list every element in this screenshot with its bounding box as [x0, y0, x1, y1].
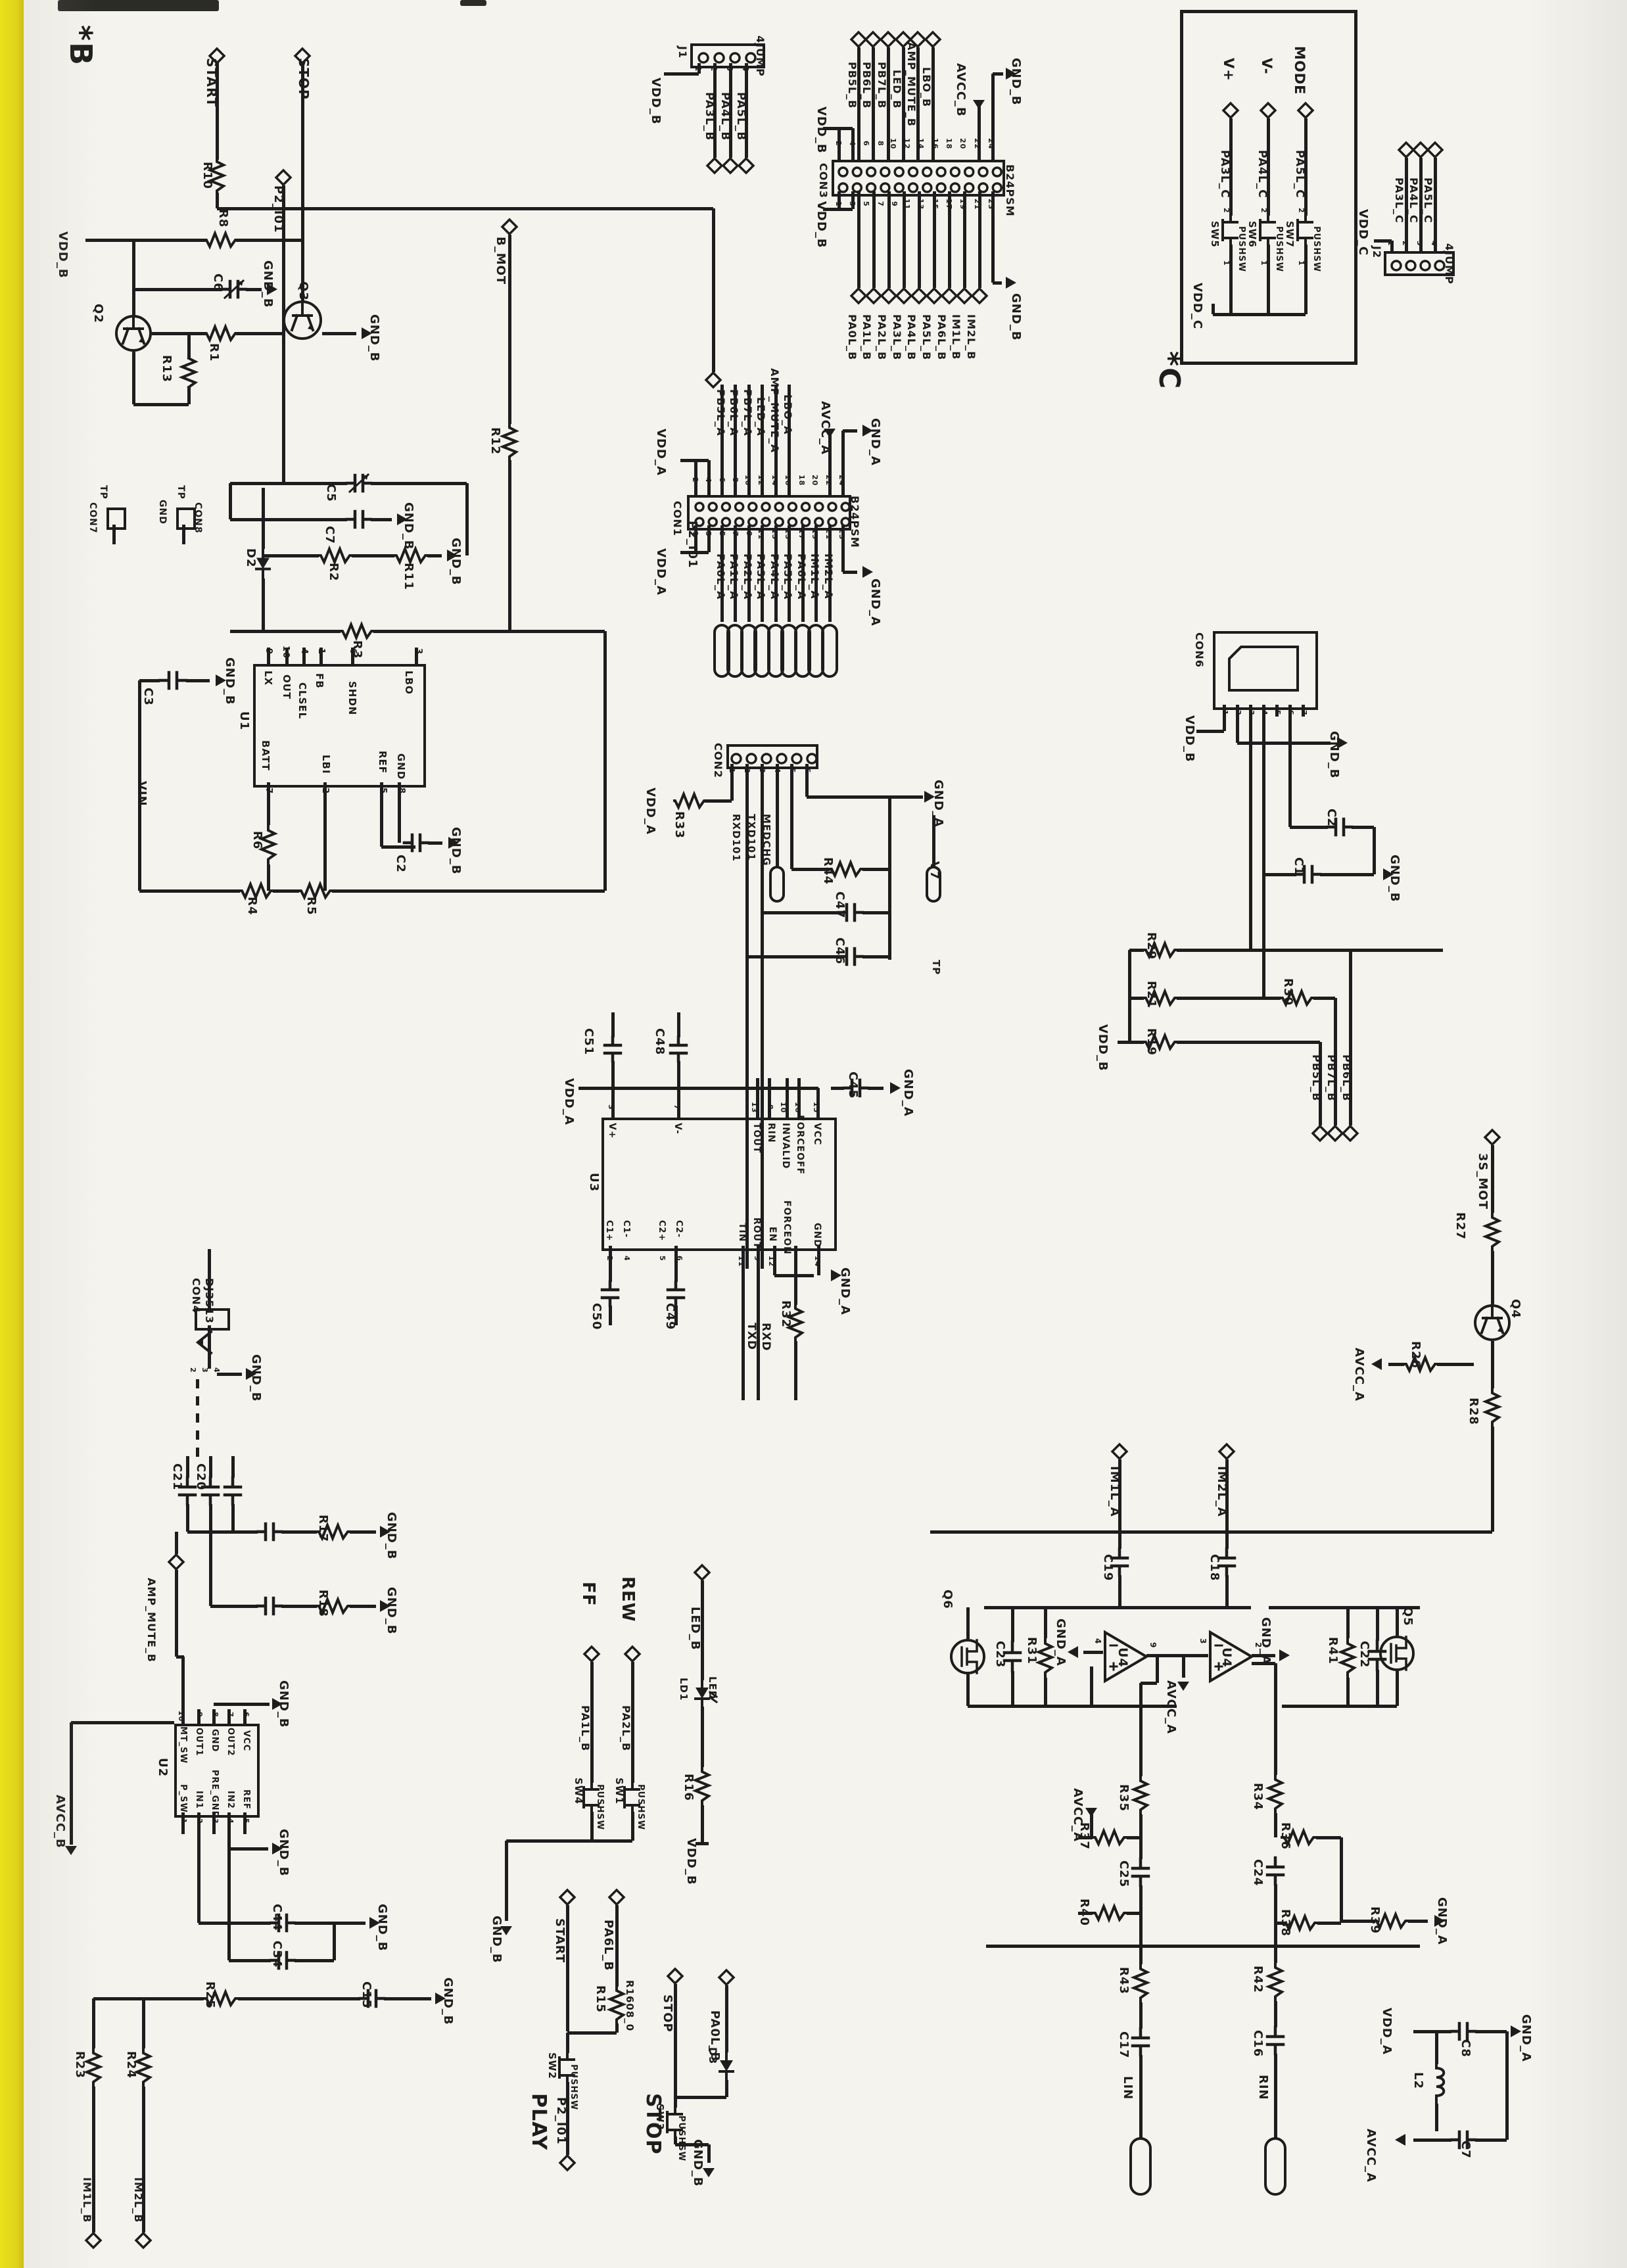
label-pb5l-a: PB5L_A	[715, 389, 726, 437]
label-1: 1	[180, 1818, 187, 1824]
section-c-marker: *C	[1154, 351, 1183, 390]
label-pa1l-a: PA1L_A	[728, 554, 739, 600]
wire	[217, 207, 713, 210]
wire	[1274, 1946, 1277, 1963]
label-18: 18	[945, 138, 953, 149]
label-con6: CON6	[1194, 632, 1204, 668]
label-tp: TP	[176, 485, 185, 500]
label-pa3l-c: PA3L_C	[1394, 177, 1404, 224]
label-3: 3	[201, 1367, 208, 1373]
label-led-b: LED_B	[891, 70, 902, 109]
label-3: 3	[1248, 710, 1255, 716]
label-lbo-b: LBO_B	[921, 67, 931, 107]
wire	[350, 1530, 376, 1534]
label-9: 9	[1149, 1642, 1157, 1648]
label-ff: FF	[580, 1582, 597, 1607]
label-11: 11	[903, 199, 910, 210]
label-c49: C49	[664, 1303, 676, 1330]
gnd-arrow	[861, 423, 874, 438]
cap-c45	[844, 1079, 868, 1097]
label-amp-mute-b: AMP_MUTE_B	[906, 42, 916, 127]
wire	[611, 1088, 615, 1118]
wire	[186, 1504, 189, 1532]
wire	[675, 2096, 726, 2099]
wire	[966, 1607, 970, 1639]
wire	[615, 1905, 619, 1987]
label-pa4l-a: PA4L_A	[769, 554, 780, 600]
inductor-l2	[1428, 2064, 1445, 2104]
label-c25: C25	[1118, 1860, 1129, 1887]
label-8: 8	[212, 1712, 219, 1718]
label-r35: R35	[1118, 1784, 1129, 1812]
wire	[1274, 1813, 1277, 1837]
label-q5: Q5	[1402, 1607, 1413, 1626]
label-4: 4	[623, 1256, 630, 1262]
wire	[680, 459, 709, 462]
wire	[843, 571, 857, 574]
wire	[1083, 1651, 1103, 1654]
ic-u1	[253, 664, 426, 788]
cap-c3	[160, 671, 186, 690]
label-5: 5	[659, 1256, 666, 1262]
terminal-start2	[559, 1889, 576, 1906]
label-vdd-a: VDD_A	[655, 548, 667, 596]
label-rxd: RXD	[760, 1323, 771, 1351]
label-vdd-b: VDD_B	[815, 201, 827, 248]
wire	[930, 1530, 1492, 1534]
wire	[1491, 1145, 1494, 1213]
terminal-pa5l-b	[738, 157, 755, 174]
label-led-b: LED_B	[689, 1607, 701, 1650]
label-pa2l-b: PA2L_B	[621, 1705, 631, 1751]
resistor-r34	[1266, 1775, 1285, 1813]
wire	[85, 239, 206, 242]
label-led-a: LED_A	[755, 397, 766, 437]
resistor-r3	[341, 622, 373, 640]
label-9: 9	[745, 531, 753, 537]
wire	[93, 1997, 204, 2000]
label-5: 5	[243, 1818, 250, 1824]
wire	[1437, 1363, 1474, 1366]
terminal	[1427, 141, 1444, 158]
pad-rin	[1264, 2137, 1286, 2196]
label-9: 9	[196, 1712, 203, 1718]
cap	[224, 1478, 242, 1504]
resistor-r18	[317, 1597, 350, 1615]
wire	[216, 193, 219, 208]
resistor-r29	[1144, 941, 1177, 959]
label-gnd-b: GND_B	[692, 2139, 703, 2187]
wire	[229, 1847, 268, 1851]
wire	[323, 782, 327, 891]
resistor-r32	[786, 1305, 805, 1341]
wire	[1313, 997, 1335, 1000]
wire	[1373, 827, 1376, 874]
label-b-mot: B_MOT	[494, 237, 506, 285]
label-q4: Q4	[1509, 1299, 1521, 1319]
wire	[1388, 1363, 1404, 1366]
terminal-vplus	[1222, 102, 1239, 119]
wire	[246, 288, 262, 291]
wire	[993, 72, 1003, 76]
terminal-led-b	[694, 1564, 711, 1581]
testpoint-con8	[176, 508, 196, 530]
label-pa3l-b: PA3L_B	[703, 92, 715, 141]
gnd-arrow	[1278, 1648, 1291, 1663]
wire	[978, 106, 981, 160]
label-6: 6	[243, 1712, 250, 1718]
cap-c24	[1266, 1858, 1285, 1884]
label-r40: R40	[1078, 1899, 1090, 1926]
wire	[872, 191, 876, 288]
wire	[611, 1012, 615, 1037]
wire	[1139, 1814, 1143, 1837]
label-avcc-a: AVCC_A	[1165, 1680, 1177, 1734]
label-gnd-a: GND_A	[1054, 1618, 1066, 1666]
label-5: 5	[1274, 710, 1281, 716]
cap-c19	[1110, 1549, 1129, 1575]
label-2: 2	[1235, 710, 1242, 716]
label-gnd-a: GND_A	[869, 579, 881, 626]
label-pa6l-b: PA6L_B	[936, 314, 947, 360]
wire	[986, 1945, 1420, 1948]
wire	[465, 483, 469, 555]
label-im2l-a: IM2L_A	[1215, 1466, 1227, 1517]
resistor-r24	[134, 2048, 153, 2087]
label-avcc-b: AVCC_B	[54, 1795, 66, 1849]
wire	[609, 1306, 612, 1325]
wire	[1505, 2031, 1509, 2140]
terminal-pa6l-b	[608, 1889, 625, 1906]
resistor-r39	[1374, 1912, 1408, 1930]
terminal-stop2	[667, 1968, 684, 1985]
label-q2: Q2	[92, 304, 104, 323]
wire	[603, 631, 607, 891]
wire	[187, 387, 191, 404]
label-l2: L2	[1412, 2072, 1424, 2089]
label-2: 2	[835, 141, 842, 147]
wire	[578, 1087, 818, 1090]
wire	[333, 1923, 336, 1960]
terminal-play	[559, 2154, 576, 2171]
label-8: 8	[877, 141, 884, 147]
ic-u3	[601, 1118, 837, 1251]
label-con3: CON3	[818, 163, 828, 199]
label-8: 8	[397, 788, 406, 794]
label-9: 9	[753, 1256, 761, 1262]
cap-c20	[201, 1478, 220, 1504]
gnd-arrow	[396, 512, 409, 527]
label-im1l-a: IM1L_A	[809, 554, 820, 600]
wire	[384, 1997, 431, 2000]
gnd-arrow	[1336, 736, 1349, 750]
resistor-r8	[206, 231, 236, 249]
label-19: 19	[959, 199, 966, 210]
wire	[508, 235, 511, 424]
label-ld1: LD1	[678, 1678, 688, 1701]
label-10: 10	[177, 1711, 185, 1722]
wire	[705, 799, 732, 803]
wire	[152, 332, 206, 335]
label-2: 2	[189, 1367, 197, 1373]
label-q6: Q6	[941, 1590, 953, 1609]
cap-c22	[1368, 1641, 1386, 1670]
label-r12: R12	[489, 427, 501, 455]
label-1: 1	[835, 201, 842, 207]
label-9: 9	[891, 201, 898, 207]
label-pb6l-a: PB6L_A	[728, 389, 739, 437]
cap-c34	[271, 1951, 295, 1970]
label-b24psm: B24PSM	[1004, 164, 1015, 217]
wire	[1118, 1041, 1129, 1044]
label-u2: U2	[156, 1758, 168, 1777]
gnd-arrow	[889, 1081, 902, 1095]
terminal-im1l-b	[85, 2232, 102, 2249]
wire	[862, 955, 889, 958]
label-pb5l-b: PB5L_B	[847, 62, 857, 108]
label-4: 4	[1094, 1638, 1102, 1644]
wire	[209, 1504, 212, 1532]
wire	[843, 429, 857, 433]
wire	[1352, 826, 1374, 829]
ic-u2	[174, 1724, 260, 1818]
transistor-q6	[950, 1639, 985, 1674]
wire	[968, 1705, 1177, 1708]
label-c3: C3	[142, 688, 154, 706]
wire	[677, 1061, 680, 1088]
label-r2: R2	[327, 563, 339, 581]
label-r37: R37	[1078, 1822, 1090, 1850]
switch-sw4	[580, 1781, 603, 1814]
label-c24: C24	[1252, 1859, 1263, 1886]
label-3: 3	[1416, 241, 1423, 247]
wire	[209, 1532, 212, 1606]
wire	[295, 1959, 334, 1962]
wire	[1491, 1341, 1494, 1388]
wire	[1225, 1575, 1229, 1607]
diode-d3	[717, 2052, 743, 2080]
cap-c18	[1217, 1549, 1236, 1575]
label-15: 15	[813, 1102, 820, 1113]
cap-c1	[1296, 865, 1320, 884]
label-vdd-b: VDD_B	[57, 231, 68, 279]
label-9: 9	[264, 648, 273, 655]
label-pb6l-b: PB6L_B	[1341, 1054, 1352, 1101]
label-c5: C5	[325, 484, 337, 502]
wire	[567, 2031, 617, 2035]
wire	[966, 1674, 970, 1706]
label-avcc-a: AVCC_A	[1353, 1348, 1365, 1402]
con6-card-symbol	[1228, 646, 1299, 692]
trimmer-cap-c6	[222, 280, 246, 298]
label-im1l-b: IM1L_B	[82, 2177, 92, 2223]
gnd-arrow	[830, 1268, 843, 1283]
wire	[1274, 2001, 1277, 2027]
label-gnd-b: GND_B	[1010, 58, 1022, 106]
terminal	[971, 287, 988, 304]
wire	[1274, 2054, 1277, 2138]
gnd-arrow	[379, 1524, 392, 1539]
wire	[132, 352, 135, 404]
wire	[984, 1606, 1251, 1609]
section-b-marker: *B	[66, 25, 96, 66]
label-vin: VIN	[135, 781, 147, 807]
label-5: 5	[379, 788, 387, 794]
label-10: 10	[780, 1102, 787, 1113]
resistor-r2	[319, 546, 352, 565]
label-rin: RIN	[1257, 2075, 1269, 2100]
resistor-r1	[206, 324, 236, 343]
wire	[762, 911, 839, 914]
wire	[427, 554, 442, 557]
label-im2l-b: IM2L_B	[133, 2177, 143, 2223]
wire	[1282, 1705, 1397, 1708]
label-14: 14	[917, 138, 924, 149]
diode-d2	[254, 549, 280, 579]
label-c50: C50	[590, 1303, 602, 1330]
wire	[1249, 717, 1252, 950]
wire	[350, 1605, 376, 1608]
wire	[1320, 873, 1374, 876]
wire	[196, 1379, 199, 1457]
cap-c8	[1451, 2022, 1475, 2041]
label-gnd: GND	[158, 500, 167, 525]
gnd-arrow	[701, 2167, 716, 2179]
resistor-r23	[84, 2048, 103, 2087]
label-sw2: SW2	[547, 2052, 557, 2079]
wire	[236, 239, 302, 242]
wire	[1177, 1041, 1320, 1044]
label-gnd-b: GND_B	[450, 827, 461, 875]
label-r11: R11	[402, 563, 414, 590]
gnd-arrow	[360, 326, 373, 341]
testpoint-con7	[106, 508, 126, 530]
wire	[1146, 1654, 1183, 1657]
label-c48: C48	[653, 1028, 665, 1055]
wire	[508, 460, 511, 631]
wire	[70, 1722, 73, 1845]
label-6: 6	[676, 1256, 683, 1262]
terminal-im2l-b	[135, 2232, 152, 2249]
label-c8: C8	[1459, 2039, 1471, 2058]
label-3s-mot: 3S_MOT	[1476, 1153, 1488, 1210]
wire	[831, 1087, 844, 1090]
label-r27: R27	[1454, 1212, 1466, 1240]
terminal-ff	[583, 1645, 600, 1663]
wire	[1156, 1655, 1159, 1683]
avcc-arrow	[1370, 1357, 1383, 1371]
label-pa5l-b: PA5L_B	[921, 314, 931, 360]
wire	[1090, 1666, 1093, 1706]
connector-con4	[195, 1308, 230, 1331]
wire	[428, 841, 442, 845]
wire	[175, 1570, 178, 1657]
wire	[1317, 1922, 1341, 1925]
wire	[273, 889, 299, 893]
wire	[371, 482, 467, 485]
label-stop: STOP	[661, 1995, 673, 2033]
label-pa6l-b: PA6L_B	[602, 1920, 614, 1971]
wire	[1376, 1607, 1379, 1641]
gnd-arrow	[861, 565, 874, 579]
label-pa6l-a: PA6L_A	[796, 554, 807, 600]
label-avcc-a: AVCC_A	[1365, 2129, 1377, 2183]
scan-artifact	[460, 0, 486, 6]
resistor-r17	[317, 1523, 350, 1541]
label-r15: R15	[594, 1985, 606, 2013]
label-2: 2	[1402, 241, 1409, 247]
resistor-r30	[1281, 989, 1313, 1007]
label-r28: R28	[1467, 1398, 1479, 1425]
connector-con3-pins	[836, 165, 1004, 195]
gnd-arrow	[1509, 2024, 1522, 2039]
wire	[794, 1341, 797, 1400]
wire	[139, 889, 240, 893]
gnd-arrow	[379, 1599, 392, 1613]
label-3: 3	[607, 1104, 615, 1110]
wire	[229, 483, 232, 519]
label-3: 3	[212, 1818, 219, 1824]
cap-c50	[601, 1282, 619, 1306]
label-8: 8	[766, 1104, 774, 1110]
label-23: 23	[987, 199, 995, 210]
label-16: 16	[931, 138, 939, 149]
label-gnd-b: GND_B	[490, 1916, 502, 1964]
wire	[1011, 1607, 1014, 1642]
label-7: 7	[877, 201, 884, 207]
wire	[1262, 717, 1265, 998]
resistor-r31	[1036, 1638, 1054, 1678]
label-1: 1	[1221, 710, 1229, 716]
terminal-stop	[294, 47, 311, 64]
label-3: 3	[849, 201, 856, 207]
resistor-r36	[1282, 1828, 1316, 1847]
cap-c51	[603, 1037, 622, 1061]
wire	[1316, 1836, 1341, 1839]
label-15: 15	[931, 199, 939, 210]
label-pa1l-b: PA1L_B	[580, 1705, 590, 1751]
wire	[857, 191, 861, 288]
wire	[187, 1530, 258, 1534]
wire	[133, 403, 189, 406]
cap-c15	[360, 1989, 384, 2008]
wire	[506, 1839, 632, 1843]
wire	[747, 955, 839, 958]
wire	[1396, 1671, 1399, 1706]
resistor-r42	[1266, 1963, 1285, 2001]
label-start: START	[205, 58, 218, 107]
label-10: 10	[744, 475, 751, 486]
wire	[888, 797, 891, 960]
label-4: 4	[227, 1818, 234, 1824]
wire	[199, 1922, 271, 1925]
terminal	[1342, 1125, 1359, 1142]
label-vdd-a: VDD_A	[563, 1078, 575, 1125]
gnd-arrow	[923, 790, 936, 804]
label-4: 4	[300, 648, 308, 655]
label-6: 6	[719, 477, 726, 483]
gnd-arrow	[1382, 867, 1395, 882]
label-5: 5	[719, 531, 726, 537]
wire	[1139, 1885, 1143, 1946]
wire	[332, 889, 605, 893]
wire	[1011, 1671, 1014, 1706]
label-lbo-a: LBO_A	[782, 394, 793, 435]
wire	[609, 1246, 612, 1282]
label-c17: C17	[1118, 2031, 1129, 2058]
label-r43: R43	[1118, 1967, 1129, 1995]
wire	[231, 1456, 235, 1478]
